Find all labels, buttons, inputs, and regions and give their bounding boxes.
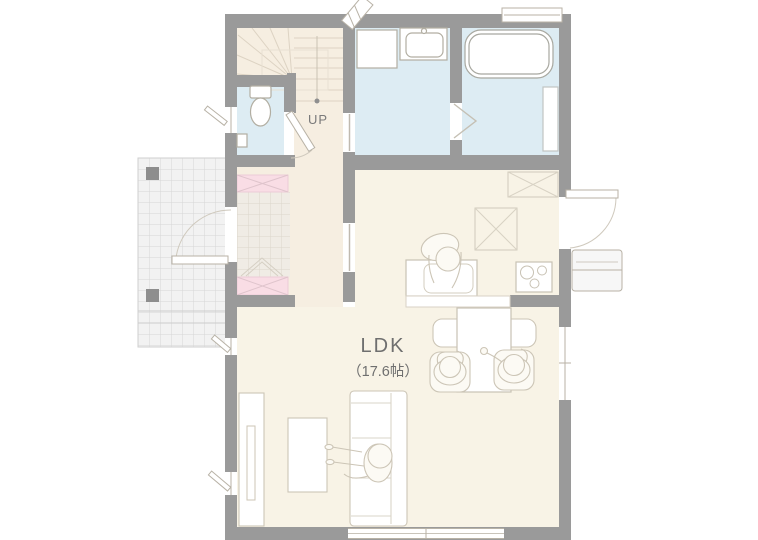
bath-counter xyxy=(543,87,558,151)
shoe-cabinet xyxy=(237,277,288,295)
genkan xyxy=(237,175,290,295)
living-window xyxy=(348,528,504,539)
ldk-side-window xyxy=(208,471,237,495)
washing-machine-space xyxy=(357,30,397,68)
person-foot xyxy=(326,459,334,464)
low-table xyxy=(288,418,327,492)
back-door xyxy=(559,190,618,249)
wall-corridor-south xyxy=(225,295,295,307)
toilet-tank xyxy=(250,86,271,98)
dining-window xyxy=(559,327,571,400)
vanity-basin xyxy=(406,33,443,57)
bathtub xyxy=(465,30,553,78)
kitchen-counter-front xyxy=(406,296,510,307)
shoe-cabinet xyxy=(237,175,288,192)
person-head xyxy=(440,357,461,378)
room-label: LDK xyxy=(361,335,406,357)
wall-left xyxy=(225,28,237,107)
person-head xyxy=(436,247,460,271)
wall-right xyxy=(559,28,571,197)
wall-hall-east xyxy=(343,272,355,302)
washroom-sliding-door xyxy=(343,113,355,152)
stair-direction-dot xyxy=(315,99,320,104)
wall-left xyxy=(225,278,237,340)
wall-wash-bath xyxy=(450,28,462,103)
floor-plan-drawing: LDK （17.6帖） UP xyxy=(0,0,758,540)
wall-right xyxy=(559,249,571,327)
bathroom-window xyxy=(502,8,562,22)
front-door-leaf xyxy=(172,256,228,264)
wall-left xyxy=(225,163,237,207)
wall-toilet-south xyxy=(225,155,295,167)
wall-left xyxy=(225,495,237,527)
vanity-faucet xyxy=(422,29,427,34)
wall-right xyxy=(559,400,571,527)
hall-ldk-sliding-door xyxy=(343,223,355,272)
wall-kitchen-half xyxy=(510,295,561,307)
toilet-window xyxy=(204,106,237,133)
porch-pillar xyxy=(146,289,159,302)
back-door-swing xyxy=(570,198,616,248)
toilet-bowl xyxy=(251,98,271,126)
porch-tiles xyxy=(138,158,226,347)
tv xyxy=(247,426,255,500)
wall-stairs-toilet xyxy=(225,75,293,87)
person-head xyxy=(504,355,525,376)
wall-water-ldk xyxy=(343,155,571,170)
back-door-leaf xyxy=(566,190,618,198)
toilet-paper-holder xyxy=(237,134,247,147)
floor-plan: LDK （17.6帖） UP xyxy=(0,0,758,540)
cup xyxy=(481,348,488,355)
wall-left xyxy=(225,355,237,472)
stairs-up-label: UP xyxy=(308,112,328,127)
porch-pillar xyxy=(146,167,159,180)
gas-stove xyxy=(516,262,552,292)
genkan-tiles xyxy=(237,192,290,277)
wall-stair-stub xyxy=(287,73,296,113)
person-foot xyxy=(325,444,333,449)
person-head xyxy=(368,444,392,468)
wall-hall-east xyxy=(343,28,355,113)
dining-chair-left xyxy=(430,351,470,392)
entrance-porch xyxy=(138,158,226,347)
back-door-steps xyxy=(572,250,622,291)
room-size-label: （17.6帖） xyxy=(347,363,419,380)
